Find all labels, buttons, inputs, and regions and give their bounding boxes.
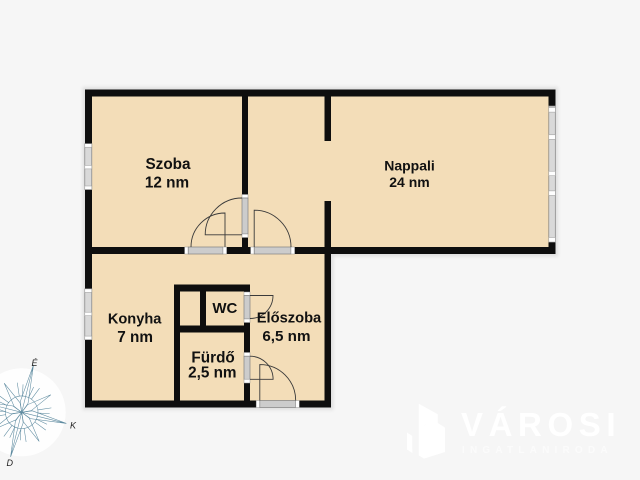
svg-text:WC: WC xyxy=(212,300,237,317)
svg-text:24 nm: 24 nm xyxy=(389,174,429,190)
svg-text:6,5 nm: 6,5 nm xyxy=(262,328,310,345)
svg-text:7 nm: 7 nm xyxy=(117,329,153,346)
svg-text:D: D xyxy=(7,458,14,468)
svg-text:2,5 nm: 2,5 nm xyxy=(188,365,236,382)
svg-text:Szoba: Szoba xyxy=(145,156,191,173)
svg-text:K: K xyxy=(70,421,77,431)
svg-text:Nappali: Nappali xyxy=(384,158,435,174)
svg-text:Konyha: Konyha xyxy=(108,312,162,328)
svg-text:VÁROSI: VÁROSI xyxy=(461,406,621,443)
svg-text:É: É xyxy=(32,358,39,368)
svg-text:INGATLANIRODA: INGATLANIRODA xyxy=(462,445,613,456)
svg-text:Előszoba: Előszoba xyxy=(257,310,322,326)
svg-text:12 nm: 12 nm xyxy=(145,175,189,192)
